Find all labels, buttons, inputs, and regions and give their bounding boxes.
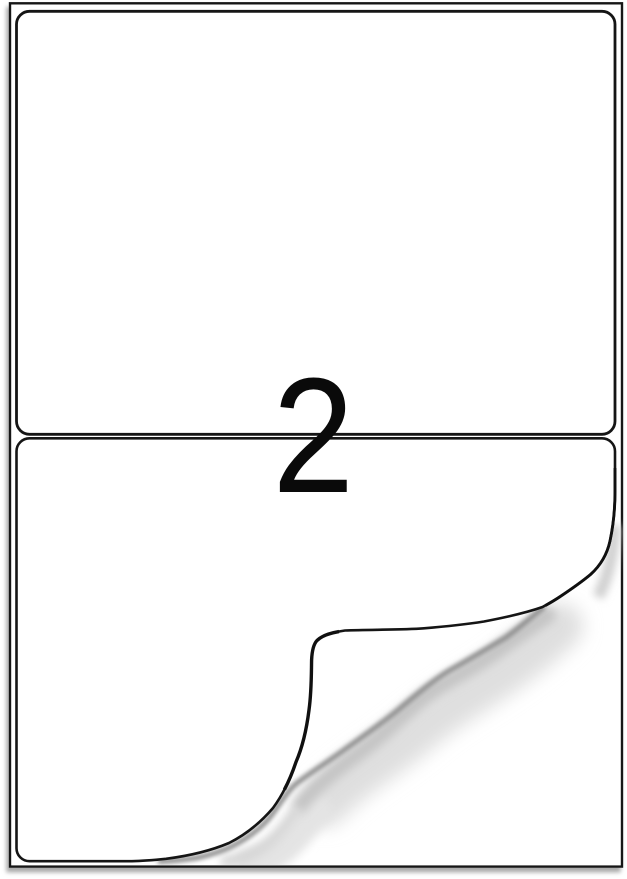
svg-text:2: 2 xyxy=(273,343,355,526)
